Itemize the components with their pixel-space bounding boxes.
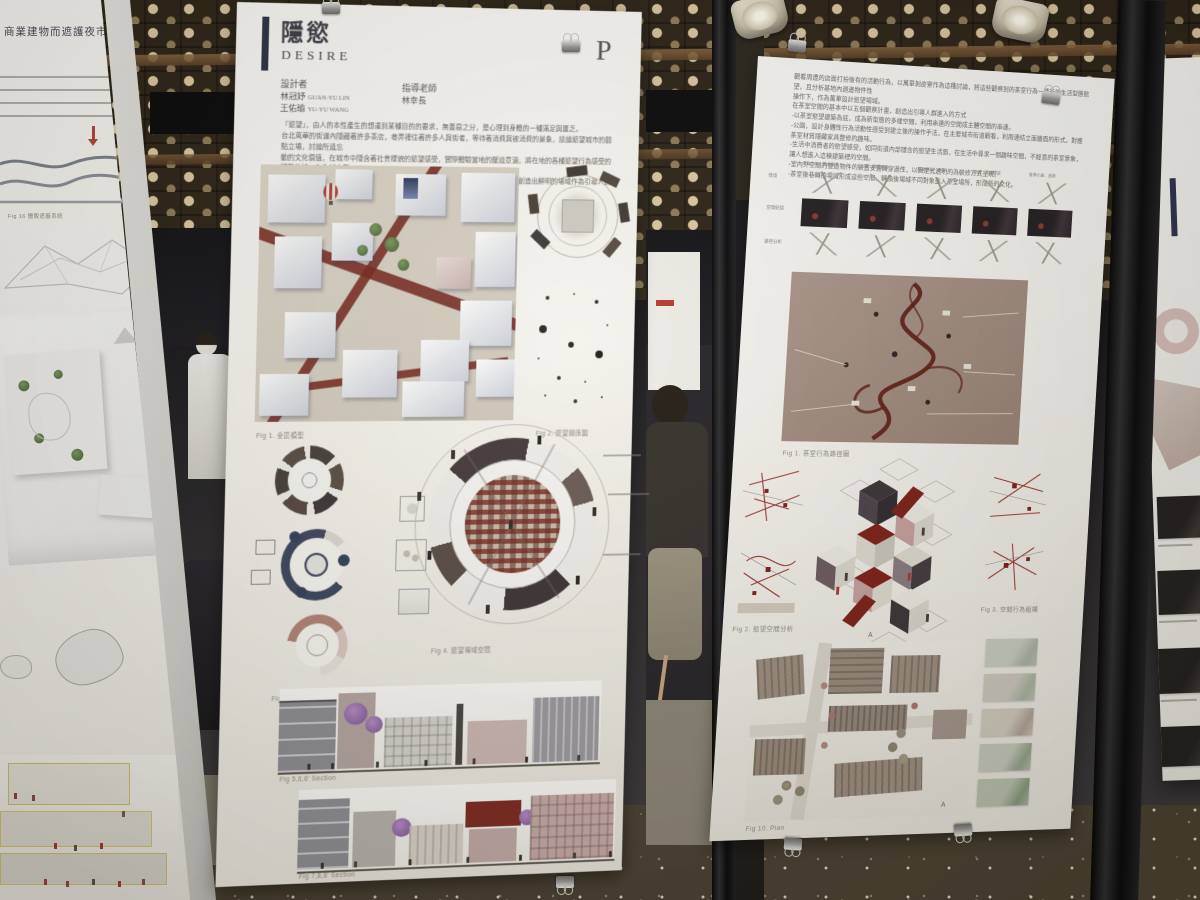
matrix-row-label: 空間紀錄 — [766, 205, 784, 212]
photo-ring-diagram — [274, 445, 345, 515]
center-poster: 隱慾 DESIRE P 設計者 林冠妤 GUAN-YU LIN 王佑瑜 YU-Y… — [215, 2, 641, 887]
red-path-sketch-left — [733, 465, 807, 616]
desire-field-collage — [426, 437, 598, 612]
center-gap-scene — [646, 0, 714, 900]
section-drawing-2 — [297, 779, 616, 874]
site-plan — [744, 641, 977, 822]
matrix-col-header: 後巷小路．逃跑 — [1029, 172, 1077, 180]
blob-sketch — [0, 655, 32, 679]
matrix-row-label: 情境 — [768, 173, 777, 179]
red-path-sketch-right — [981, 462, 1050, 598]
project-title-zh: 隱慾 — [281, 13, 333, 48]
right-poster: 觀看周遭的店面打扮後有的活動行為，以萬華剝皮寮作為這種討論，將這些觀察到的茶室行… — [709, 56, 1114, 841]
matrix-col-header: 房間．慾望釋放 — [973, 169, 1021, 177]
matrix-col-header: 大廳．觀看簾幕 — [860, 163, 910, 171]
route-svg — [781, 272, 1028, 445]
person-head — [196, 332, 217, 355]
visitor-head — [652, 385, 688, 425]
section-marker-top: A — [868, 632, 873, 639]
network-diagram — [534, 285, 605, 412]
binder-clip-icon — [784, 837, 803, 850]
grey-chair — [648, 548, 702, 660]
advisor-label: 指導老師 — [402, 81, 437, 94]
matrix-row-label: 路徑分析 — [764, 239, 782, 246]
edge-title-bar — [1170, 178, 1178, 236]
page-letter: P — [596, 34, 612, 67]
radar-diagram — [536, 174, 619, 259]
designer-2: 王佑瑜 YU-YU WANG — [280, 102, 349, 115]
section-perspective — [0, 755, 178, 900]
right-fig2-caption: Fig 2. 慾望空間分析 — [732, 623, 794, 634]
cube-collage — [811, 456, 975, 651]
binder-clip-icon — [562, 40, 580, 52]
fig6-caption: Fig 7,8,8' Section — [299, 871, 355, 880]
figure-silhouettes — [509, 520, 513, 529]
binder-clip-icon — [556, 876, 574, 888]
advisor-name: 林幸長 — [402, 94, 427, 106]
behavior-matrix: 情境 空間紀錄 路徑分析 不良少年．舞女觀看 大廳．觀看簾幕 樓梯轉角．偷看 房… — [797, 160, 1077, 268]
exhibition-photo: 商業建物而遮護夜市人 Fig 16 攤販遮蔽系統 — [0, 0, 1200, 900]
fig5-caption: Fig 5,6,6' Section — [279, 775, 335, 784]
matrix-col-header: 不良少年．舞女觀看 — [802, 160, 853, 168]
crowd-dots — [14, 793, 17, 799]
left-fig-caption: Fig 16 攤販遮蔽系統 — [8, 212, 63, 220]
red-arrow-head — [88, 139, 98, 146]
designer-label: 設計者 — [280, 77, 307, 90]
section-drawing-1 — [278, 680, 602, 775]
section-marker-bottom: A — [941, 802, 946, 809]
title-accent-bar — [261, 17, 269, 71]
fig4-caption: Fig 4. 慾望場域空間 — [431, 644, 491, 655]
binder-clip-icon — [787, 39, 806, 53]
binder-clip-icon — [1041, 91, 1060, 105]
visitor-body — [646, 422, 708, 557]
billboard — [403, 178, 418, 199]
matrix-col-header: 樓梯轉角．偷看 — [917, 166, 966, 174]
binder-clip-icon — [954, 823, 973, 836]
hot-air-balloon — [323, 183, 338, 200]
project-title-en: DESIRE — [281, 47, 351, 64]
red-arrow-down — [92, 126, 95, 140]
route-panel — [781, 272, 1028, 445]
poster-fragment — [648, 252, 700, 390]
blob-sketch — [50, 624, 128, 691]
right-fig3-caption: Fig 3. 空間行為組構 — [980, 604, 1038, 614]
binder-clip-icon — [322, 2, 340, 14]
pink-circle-diagram — [286, 614, 348, 677]
right-fig4-caption: Fig 10. Plan — [745, 825, 784, 833]
fig1-caption: Fig 1. 全區模型 — [256, 430, 304, 440]
navy-circle-diagram — [280, 528, 352, 601]
site-render — [255, 164, 520, 422]
